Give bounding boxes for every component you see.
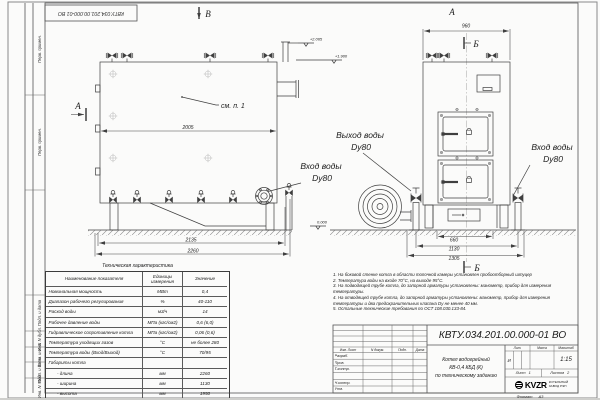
elevation-icon: [326, 60, 342, 63]
document-stamp: КВТУ.034.201.00.000-01 ВО: [45, 5, 137, 21]
dim-2135: 2135: [184, 238, 196, 244]
company-name: КОТЕЛЬНЫЙ ЗАВОД РЭП: [549, 381, 568, 388]
kvzr-logo-icon: [515, 381, 523, 389]
drawing-sheet: 2005 2135 2260 960 660 1130 1305 +2.065 …: [0, 0, 600, 400]
elevation-1900: +1.900: [335, 54, 348, 59]
kvzr-logo-text: KVZR: [525, 380, 547, 390]
product-name-line1: Котел водогрейный: [442, 357, 490, 365]
water-outlet-label: Выход воды: [336, 130, 385, 140]
role-razrab: Разраб.: [335, 353, 363, 360]
table-row: Расход водым3/ч14: [46, 306, 229, 316]
table-row: Габариты котла: [46, 357, 229, 367]
water-inlet-flange: [256, 188, 273, 205]
role-prov: Пров.: [335, 359, 363, 366]
table-row: Номинальная мощностьМВт0,4: [46, 286, 229, 296]
table-row: - ширинамм1130: [46, 378, 229, 388]
margin-label-perv-1: Перв. примен.: [34, 0, 44, 99]
boiler-side-view: [96, 42, 299, 230]
sheet-cell: Лист1: [505, 369, 542, 377]
tech-table-title: Техническая характеристика: [45, 262, 230, 271]
boiler-front-view: [409, 33, 525, 262]
col-header-units: Единицы измерения: [142, 272, 182, 286]
product-name: Котел водогрейный КВ-0,4 КБД (К) по техн…: [427, 346, 505, 392]
table-row: Рабочее давление водыМПа (кгс/см2)0,6 (6…: [46, 317, 229, 327]
chimney-pipe: [281, 42, 290, 62]
water-inlet-left-dn-label: Dy80: [312, 173, 332, 183]
dim-2260: 2260: [186, 249, 198, 255]
water-inlet-valve: [511, 188, 525, 230]
dim-1305: 1305: [448, 256, 459, 262]
dim-660: 660: [450, 238, 459, 244]
role-tkontr: Т.контр.: [335, 366, 363, 373]
water-outlet-dn-label: Dy80: [351, 142, 371, 152]
dim-2005: 2005: [181, 125, 193, 131]
margin-label-perv-2: Перв. примен.: [34, 92, 44, 192]
water-outlet-valve: [409, 188, 423, 230]
lifting-lug-icon: [109, 70, 118, 79]
drain-valve-icon: [197, 191, 205, 204]
tech-characteristics-table: Техническая характеристика Наименование …: [45, 262, 230, 399]
company-logo: KVZR КОТЕЛЬНЫЙ ЗАВОД РЭП: [505, 377, 578, 393]
water-inlet-right-dn-label: Dy80: [543, 154, 563, 164]
padlock-icon: [466, 128, 471, 134]
drain-valve-icon: [109, 191, 117, 204]
upper-door: [438, 112, 493, 156]
elevation-icon: [310, 226, 326, 229]
table-row: Температура уходящих газов°Сне более 280: [46, 337, 229, 347]
safety-valve-icon: [426, 53, 437, 63]
lifting-lug-icon: [109, 154, 118, 163]
col-podp: Подп.: [392, 347, 413, 353]
table-row: Гидравлическое сопротивление котлаМПа (к…: [46, 327, 229, 337]
technical-notes: 1. На боковой стенке котла в области топ…: [333, 272, 573, 312]
role-nkontr: Н.контр.: [335, 379, 363, 386]
padlock-icon: [466, 176, 471, 182]
dim-960: 960: [462, 24, 471, 30]
drain-valve-icon: [165, 191, 173, 204]
note-5: 5. Остальные технические требования по О…: [333, 306, 573, 312]
view-b-label: В: [205, 9, 211, 19]
safety-valve-icon: [204, 53, 215, 63]
safety-valve-icon: [486, 53, 497, 63]
ground-line: [88, 230, 576, 235]
water-inlet-right-label: Вход воды: [531, 142, 573, 152]
drain-valve-icon: [229, 191, 237, 204]
table-row: Диапазон рабочего регулирования%40-110: [46, 296, 229, 306]
drain-valve-icon: [133, 191, 141, 204]
view-a-label: А: [448, 7, 455, 17]
elevation-0000: 0.000: [317, 220, 328, 225]
lifting-lug-icon: [204, 70, 213, 79]
blower-fan: [359, 185, 412, 228]
water-inlet-left-label: Вход воды: [300, 161, 342, 171]
lifting-lug-icon: [204, 154, 213, 163]
role-utv: Утв.: [335, 386, 363, 393]
col-header-name: Наименование показателя: [46, 272, 142, 286]
control-panel: [477, 75, 500, 92]
safety-valve-icon: [106, 53, 117, 63]
lit-value: И: [505, 351, 513, 369]
col-n-dokum: N докум.: [363, 347, 392, 353]
safety-valve-icon: [438, 53, 449, 63]
doc-number: КВТУ.034.201.00.000-01 ВО: [427, 325, 578, 345]
table-row: - длинамм2260: [46, 368, 229, 378]
product-name-line2: КВ-0,4 КБД (К): [449, 365, 483, 373]
section-b-top-label: Б: [472, 39, 479, 49]
margin-label-inv-podl: Инв. N подл.: [34, 336, 44, 400]
section-a-label: А: [74, 101, 81, 111]
col-data: Дата: [413, 347, 427, 353]
elevation-2065: +2.065: [310, 37, 323, 42]
col-header-value: Значение: [182, 272, 227, 286]
lifting-lug-icon: [109, 112, 118, 121]
table-row: Температура воды (Вход/Выход)°С70/95: [46, 347, 229, 357]
see-note-callout: см. п. 1: [221, 103, 245, 110]
note-4: 4. На отводящей трубе котла, до запорной…: [333, 295, 573, 306]
sheets-cell: Листов2: [542, 369, 579, 377]
flue-outlet: [277, 80, 299, 98]
note-3: 3. На подводящей трубе котла, до запорно…: [333, 283, 573, 294]
tech-table-header: Наименование показателя Единицы измерени…: [46, 272, 229, 286]
lower-door: [438, 160, 493, 203]
safety-valve-icon: [262, 53, 273, 63]
dim-1130: 1130: [449, 247, 460, 253]
table-row: - высотамм1950: [46, 388, 229, 398]
callouts: см. п. 1 Выход воды Dy80 Вход воды Dy80 …: [181, 96, 573, 196]
dimensions: 2005 2135 2260 960 660 1130 1305: [95, 24, 524, 263]
product-name-line3: по техническому заданию: [435, 373, 497, 381]
scale-value: 1:15: [554, 351, 578, 369]
safety-valve-icon: [121, 53, 132, 63]
mass-header: Масса: [530, 345, 554, 351]
elevation-icon: [298, 43, 314, 46]
